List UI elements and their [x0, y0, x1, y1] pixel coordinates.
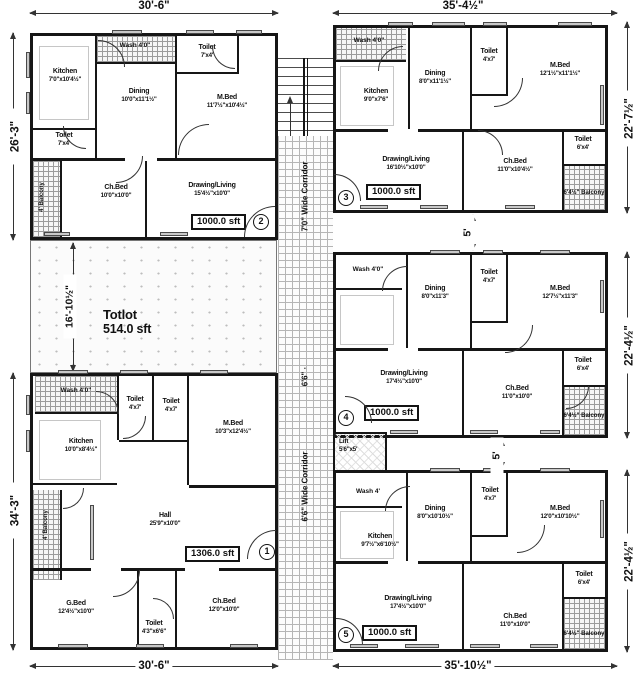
window	[90, 505, 94, 560]
dim-line-top-right	[333, 13, 617, 14]
wall	[564, 164, 605, 166]
window	[390, 430, 418, 434]
window	[112, 30, 142, 34]
window	[405, 644, 439, 648]
kitchen-counter	[340, 295, 394, 345]
window	[58, 370, 88, 374]
wall	[60, 161, 62, 237]
window	[26, 395, 30, 415]
room-gbed: G.Bed12'4½"x10'0"	[39, 600, 113, 616]
dim-right-mid: 22'-4½"	[624, 318, 637, 374]
wall	[175, 571, 177, 647]
room-mbed: M.Bed12'1½"x11'1½"	[516, 62, 604, 78]
dim-line-top-left	[30, 13, 278, 14]
window	[58, 644, 88, 648]
wall	[60, 490, 62, 580]
wall	[177, 72, 239, 74]
room-chbed: Ch.Bed11'0"x10'4½"	[470, 158, 560, 174]
room-living: Drawing/Living17'4½"x10'0"	[352, 595, 464, 611]
wall	[145, 161, 147, 237]
unit-4-area: 1000.0 sft	[364, 405, 419, 421]
room-mbed: M.Bed12'7½"x11'3"	[518, 285, 602, 301]
wall	[189, 485, 275, 488]
window	[420, 205, 448, 209]
window	[430, 250, 460, 254]
wall	[336, 561, 388, 564]
unit-5-area: 1000.0 sft	[362, 625, 417, 641]
unit-1-area: 1306.0 sft	[185, 546, 240, 562]
wall	[137, 571, 139, 647]
window	[430, 468, 460, 472]
wall	[418, 561, 605, 564]
window	[136, 644, 164, 648]
room-dining: Dining8'0"x11'3"	[404, 285, 466, 301]
window	[350, 644, 378, 648]
dim-left-top: 26'-3"	[10, 109, 23, 165]
dim-top-right: 35'-4½"	[440, 0, 487, 13]
room-living: Drawing/Living16'10½"x10'0"	[350, 156, 462, 172]
room-toilet: Toilet6'x4'	[564, 357, 602, 373]
dim-right-bottom: 22'-4½"	[624, 534, 637, 590]
room-balcony: 6'4½" Balcony	[562, 190, 606, 197]
unit-2-area: 1000.0 sft	[191, 214, 246, 230]
dim-bottom-right: 35'-10½"	[441, 660, 494, 673]
room-kitchen: Kitchen9'7½"x6'10½"	[342, 533, 418, 549]
room-mbed: M.Bed10'3"x12'4½"	[191, 420, 275, 436]
window	[600, 85, 604, 125]
window	[360, 205, 388, 209]
unit-3-area: 1000.0 sft	[366, 184, 421, 200]
window	[540, 250, 570, 254]
balcony-hatch	[564, 599, 605, 649]
wall	[472, 321, 506, 323]
window	[200, 370, 228, 374]
room-toilet: Toilet4'x7'	[472, 269, 506, 285]
window	[530, 644, 558, 648]
room-dining: Dining8'0"x11'1½"	[404, 70, 466, 86]
wall	[219, 568, 275, 571]
window	[26, 92, 30, 114]
room-wash: Wash 4'0"	[336, 37, 402, 44]
window	[483, 22, 507, 26]
stair-stringer	[307, 58, 308, 136]
room-chbed: Ch.Bed10'0"x10'0"	[89, 184, 143, 200]
window	[26, 52, 30, 78]
window	[160, 232, 188, 236]
wall	[237, 36, 239, 74]
dim-gap-45: 5'	[491, 438, 504, 474]
window	[558, 22, 592, 26]
corridor-lower-label: 6'6" Wide Corridor	[301, 427, 310, 547]
room-chbed: Ch.Bed11'0"x10'0"	[474, 385, 560, 401]
room-toilet: Toilet6'x4'	[564, 136, 602, 152]
floor-plan: up 7'0" Wide Corridor 6'6" · 6'6" Wide C…	[0, 0, 640, 682]
window	[388, 22, 413, 26]
corridor-upper-label: 7'0" Wide Corridor	[301, 137, 310, 257]
room-toilet: Toilet4'3"x6'6"	[135, 620, 173, 636]
unit-4: Wash 4'0" Dining8'0"x11'3" Toilet4'x7' M…	[333, 252, 608, 438]
window	[432, 22, 465, 26]
room-living: Drawing/Living17'4½"x10'0"	[348, 370, 460, 386]
room-balcony: 4' Balcony	[39, 172, 45, 222]
wall	[470, 28, 472, 129]
wall	[470, 473, 472, 561]
window	[230, 644, 258, 648]
room-chbed: Ch.Bed12'0"x10'0"	[181, 598, 267, 614]
room-toilet: Toilet4'x7'	[155, 398, 187, 414]
wall	[95, 36, 97, 158]
dim-bottom-left: 30'-6"	[135, 660, 172, 673]
wall	[152, 376, 154, 440]
unit-3: Wash 4'0" Kitchen9'0"x7'6" Dining8'0"x11…	[333, 25, 608, 213]
window	[505, 205, 535, 209]
totlot-label: Totlot 514.0 sft	[103, 307, 203, 337]
wall	[336, 348, 388, 351]
balcony-hatch	[564, 166, 605, 210]
room-dining: Dining8'0"x10'10½"	[404, 505, 466, 521]
wall	[175, 36, 177, 158]
wall	[157, 158, 275, 161]
lift-label: Lift 5'6"x5'	[339, 438, 381, 453]
unit-5: Wash 4' Dining8'0"x10'10½" Toilet4'x7' M…	[333, 470, 608, 652]
window	[540, 430, 560, 434]
stair-stringer	[303, 58, 305, 136]
dim-right-top: 22'-7½"	[624, 91, 637, 147]
wall	[564, 597, 605, 599]
wall	[187, 376, 189, 485]
wall	[462, 132, 464, 210]
wall	[119, 440, 187, 442]
wall	[462, 351, 464, 435]
wall	[336, 129, 388, 132]
room-hall: Hall25'9"x10'0"	[121, 512, 209, 528]
totlot-dim: 16'-10½"	[64, 275, 77, 339]
room-toilet: Toilet4'x7'	[119, 396, 151, 412]
room-toilet: Toilet6'x4'	[566, 571, 602, 587]
room-toilet: Toilet4'x7'	[474, 487, 506, 503]
window	[483, 250, 503, 254]
window	[540, 468, 570, 472]
window	[470, 644, 500, 648]
window	[120, 370, 148, 374]
wall	[506, 473, 508, 537]
dim-gap-34: 5'	[462, 215, 475, 251]
wall	[33, 483, 117, 485]
room-balcony: 6'4½" Balcony	[562, 631, 606, 638]
wall	[472, 535, 506, 537]
room-kitchen: Kitchen7'0"x10'4½"	[37, 68, 93, 84]
wall	[418, 129, 605, 132]
wall	[506, 255, 508, 323]
window	[186, 30, 214, 34]
window	[470, 430, 498, 434]
dim-left-bottom: 34'-3"	[10, 483, 23, 539]
room-living: Drawing/Living15'4½"x10'0"	[159, 182, 265, 198]
corridor-mid-label: 6'6" ·	[301, 347, 310, 407]
balcony-hatch	[33, 161, 60, 237]
wall	[33, 568, 91, 571]
window	[236, 30, 262, 34]
window	[600, 280, 604, 313]
window	[26, 430, 30, 452]
room-dining: Dining10'0"x11'1½"	[105, 88, 173, 104]
corridor: up 7'0" Wide Corridor 6'6" · 6'6" Wide C…	[278, 30, 333, 660]
room-mbed: M.Bed11'7½"x10'4½"	[181, 94, 273, 110]
room-chbed: Ch.Bed11'0"x10'0"	[472, 613, 558, 629]
window	[44, 232, 70, 236]
room-balcony: 4' Balcony	[43, 500, 49, 550]
room-mbed: M.Bed12'0"x10'10½"	[516, 505, 604, 521]
room-kitchen: Kitchen9'0"x7'6"	[344, 88, 408, 104]
room-balcony: 6'4½" Balcony	[562, 413, 606, 420]
dim-top-left: 30'-6"	[135, 0, 172, 13]
wall	[33, 158, 125, 161]
room-kitchen: Kitchen10'0"x8'4½"	[39, 438, 123, 454]
room-toilet: Toilet4'x7'	[472, 48, 506, 64]
window	[600, 500, 604, 538]
